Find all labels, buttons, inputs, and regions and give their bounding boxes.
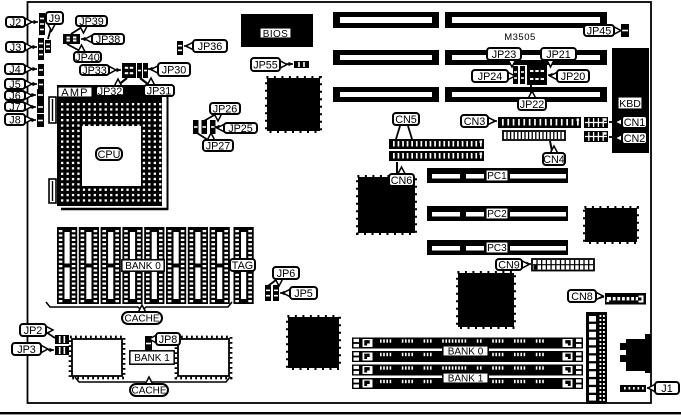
svg-text:JP30: JP30 [162,64,187,76]
svg-text:AMP: AMP [61,87,88,99]
svg-text:JP25: JP25 [228,123,253,135]
svg-text:TAG: TAG [232,260,253,272]
svg-text:JP8: JP8 [159,334,178,346]
svg-text:KBD: KBD [619,98,641,110]
svg-text:JP36: JP36 [198,41,223,53]
svg-text:JP27: JP27 [206,140,231,152]
svg-text:JP3: JP3 [17,344,36,356]
svg-text:CPU: CPU [98,149,121,161]
svg-text:JP31: JP31 [147,85,172,97]
svg-text:PC2: PC2 [487,209,507,220]
svg-text:CN6: CN6 [391,175,413,187]
svg-text:BIOS: BIOS [263,29,289,40]
svg-text:JP40: JP40 [75,52,100,64]
svg-text:JP45: JP45 [587,25,612,37]
svg-text:BANK 0: BANK 0 [448,347,484,358]
svg-text:JP26: JP26 [213,103,238,115]
svg-text:PC1: PC1 [487,171,507,182]
svg-text:CACHE: CACHE [131,386,166,397]
svg-text:JP22: JP22 [520,99,545,111]
svg-text:JP33: JP33 [82,65,107,77]
svg-text:J8: J8 [9,114,20,126]
svg-text:CN9: CN9 [498,259,520,271]
svg-text:CACHE: CACHE [124,314,159,325]
svg-text:JP38: JP38 [96,34,121,46]
svg-text:M3505: M3505 [504,32,536,43]
svg-text:J7: J7 [9,101,20,113]
svg-text:CN2: CN2 [624,133,646,145]
svg-text:BANK 1: BANK 1 [448,374,484,385]
svg-text:JP39: JP39 [79,16,104,28]
svg-text:JP20: JP20 [561,71,586,83]
svg-text:JP32: JP32 [98,86,123,98]
svg-text:J9: J9 [49,13,60,25]
svg-text:CN1: CN1 [624,117,646,129]
svg-text:J3: J3 [10,42,21,54]
svg-text:CN5: CN5 [395,114,417,126]
svg-text:J4: J4 [9,64,20,76]
svg-text:J1: J1 [661,383,672,395]
svg-text:JP23: JP23 [492,49,517,61]
svg-text:JP21: JP21 [546,49,571,61]
svg-text:JP24: JP24 [478,71,503,83]
svg-text:BANK 0: BANK 0 [125,261,161,272]
svg-text:CN8: CN8 [571,291,593,303]
svg-text:JP6: JP6 [277,268,296,280]
svg-text:J5: J5 [9,79,20,91]
svg-text:CN3: CN3 [464,116,486,128]
svg-text:CN4: CN4 [543,154,565,166]
svg-text:JP2: JP2 [24,325,43,337]
svg-text:BANK 1: BANK 1 [134,353,170,364]
svg-text:PC3: PC3 [487,243,507,254]
svg-text:J2: J2 [10,17,21,29]
svg-text:JP55: JP55 [253,59,278,71]
svg-text:JP5: JP5 [294,288,313,300]
